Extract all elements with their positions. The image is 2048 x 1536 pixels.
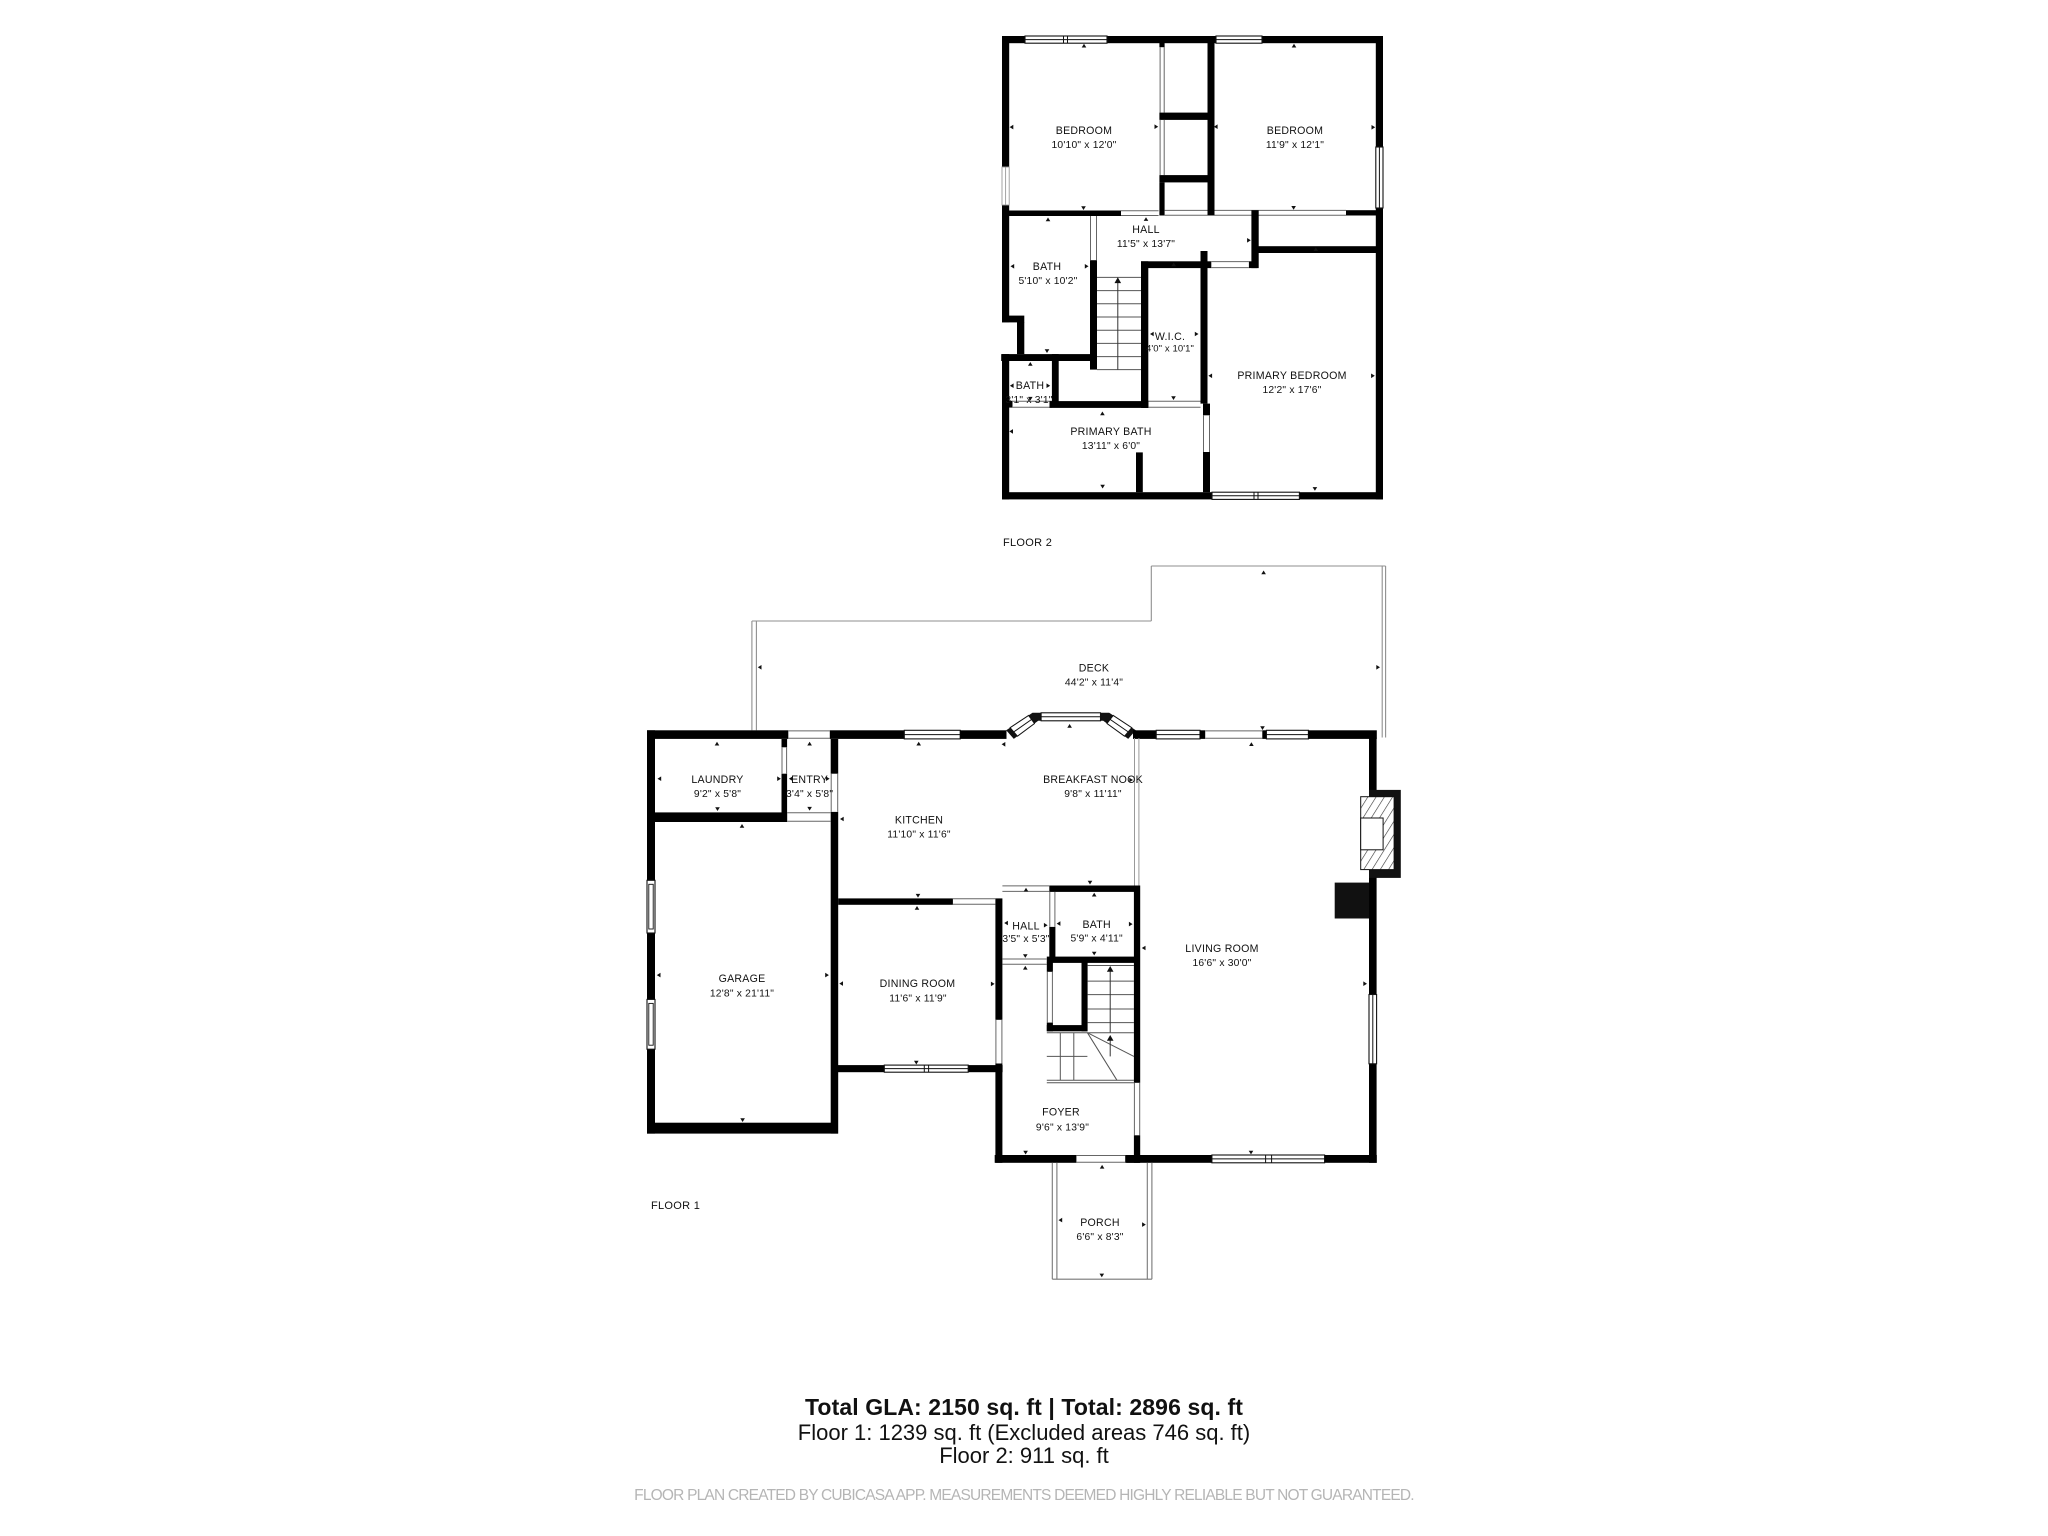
svg-text:KITCHEN: KITCHEN [895,815,943,827]
svg-text:16'6" x 30'0": 16'6" x 30'0" [1192,958,1251,969]
svg-text:3'4" x 5'8": 3'4" x 5'8" [786,789,833,800]
svg-text:PORCH: PORCH [1080,1217,1120,1229]
svg-text:11'5" x 13'7": 11'5" x 13'7" [1117,239,1175,250]
svg-text:PRIMARY BATH: PRIMARY BATH [1070,426,1151,438]
svg-text:DINING ROOM: DINING ROOM [880,978,956,990]
svg-text:W.I.C.: W.I.C. [1155,331,1185,343]
svg-text:FOYER: FOYER [1042,1107,1080,1119]
svg-text:3'1" x 3'1": 3'1" x 3'1" [1005,395,1052,406]
svg-text:FLOOR 2: FLOOR 2 [1003,537,1052,549]
svg-text:BREAKFAST NOOK: BREAKFAST NOOK [1043,774,1143,786]
svg-text:BEDROOM: BEDROOM [1267,125,1324,137]
svg-text:HALL: HALL [1012,921,1040,933]
svg-text:44'2" x 11'4": 44'2" x 11'4" [1065,678,1123,689]
svg-text:5'9" x 4'11": 5'9" x 4'11" [1071,934,1124,945]
svg-text:Total GLA: 2150 sq. ft | Total: Total GLA: 2150 sq. ft | Total: 2896 sq.… [805,1394,1243,1420]
svg-text:LIVING ROOM: LIVING ROOM [1185,943,1258,955]
svg-text:FLOOR PLAN CREATED BY CUBICASA: FLOOR PLAN CREATED BY CUBICASA APP. MEAS… [634,1487,1414,1504]
svg-text:6'6" x 8'3": 6'6" x 8'3" [1076,1232,1123,1243]
svg-text:ENTRY: ENTRY [791,774,828,786]
svg-text:3'5" x 5'3": 3'5" x 5'3" [1002,934,1049,945]
svg-text:11'6" x 11'9": 11'6" x 11'9" [889,994,947,1005]
svg-text:12'8" x 21'11": 12'8" x 21'11" [710,989,774,1000]
svg-text:10'10" x 12'0": 10'10" x 12'0" [1052,140,1117,151]
svg-text:BEDROOM: BEDROOM [1056,125,1113,137]
svg-text:5'10" x 10'2": 5'10" x 10'2" [1018,276,1077,287]
svg-text:BATH: BATH [1082,919,1110,931]
svg-text:9'6" x 13'9": 9'6" x 13'9" [1036,1123,1089,1134]
svg-text:GARAGE: GARAGE [719,973,766,985]
svg-text:11'10" x 11'6": 11'10" x 11'6" [887,830,951,841]
svg-text:HALL: HALL [1132,224,1160,236]
svg-text:LAUNDRY: LAUNDRY [691,774,743,786]
svg-text:Floor 2: 911 sq. ft: Floor 2: 911 sq. ft [939,1443,1109,1468]
svg-text:13'11" x 6'0": 13'11" x 6'0" [1082,441,1140,452]
svg-text:4'0" x 10'1": 4'0" x 10'1" [1146,344,1194,355]
svg-text:11'9" x 12'1": 11'9" x 12'1" [1266,140,1324,151]
svg-text:FLOOR 1: FLOOR 1 [651,1200,700,1212]
svg-text:BATH: BATH [1016,380,1044,392]
svg-text:PRIMARY BEDROOM: PRIMARY BEDROOM [1237,370,1346,382]
svg-text:DECK: DECK [1079,663,1109,675]
svg-text:12'2" x 17'6": 12'2" x 17'6" [1262,385,1321,396]
svg-text:9'8" x 11'11": 9'8" x 11'11" [1064,789,1122,800]
svg-text:BATH: BATH [1033,261,1061,273]
svg-text:Floor 1: 1239 sq. ft (Excluded: Floor 1: 1239 sq. ft (Excluded areas 746… [798,1420,1250,1445]
svg-text:9'2" x 5'8": 9'2" x 5'8" [694,789,741,800]
